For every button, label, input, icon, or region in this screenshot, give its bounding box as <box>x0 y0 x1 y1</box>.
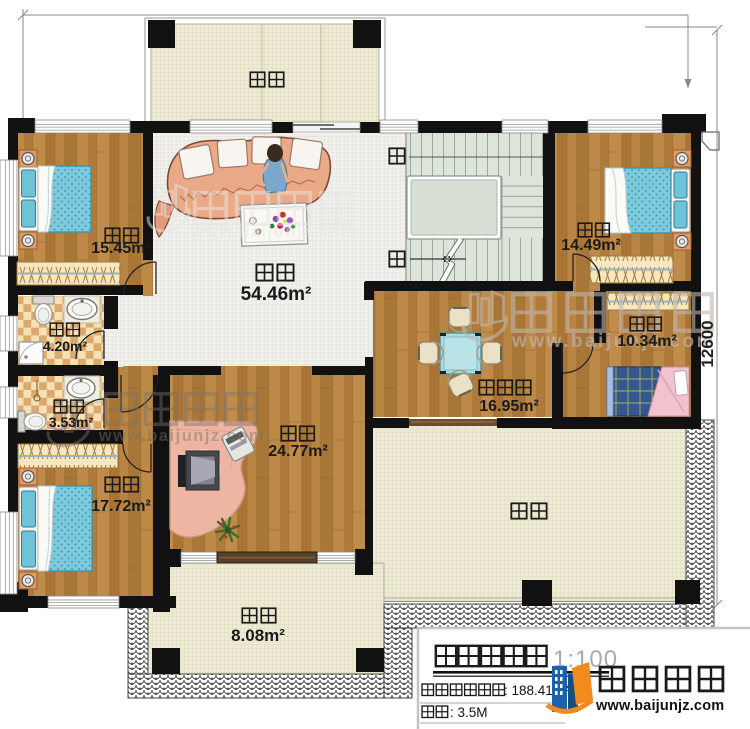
svg-text:12600: 12600 <box>698 320 717 367</box>
svg-text:14.49m²: 14.49m² <box>561 237 621 254</box>
svg-text:www.baijunjz.com: www.baijunjz.com <box>595 698 724 714</box>
svg-text:4.20m²: 4.20m² <box>43 338 88 354</box>
svg-text:24.77m²: 24.77m² <box>268 443 328 460</box>
svg-text:17.72m²: 17.72m² <box>91 498 151 515</box>
svg-text:www.baijunjz.com: www.baijunjz.com <box>190 223 357 241</box>
svg-text:16.95m²: 16.95m² <box>479 398 539 415</box>
svg-text:www.baijunjz.com: www.baijunjz.com <box>511 331 716 352</box>
svg-text:54.46m²: 54.46m² <box>241 284 312 305</box>
svg-text:15.45m²: 15.45m² <box>91 240 151 257</box>
svg-text:10.34m²: 10.34m² <box>617 333 677 350</box>
svg-text:3.53m²: 3.53m² <box>49 414 94 430</box>
svg-text:: 3.5M: : 3.5M <box>450 705 488 720</box>
svg-text:www.baijunjz.com: www.baijunjz.com <box>98 427 265 445</box>
svg-text:8.08m²: 8.08m² <box>231 626 285 645</box>
